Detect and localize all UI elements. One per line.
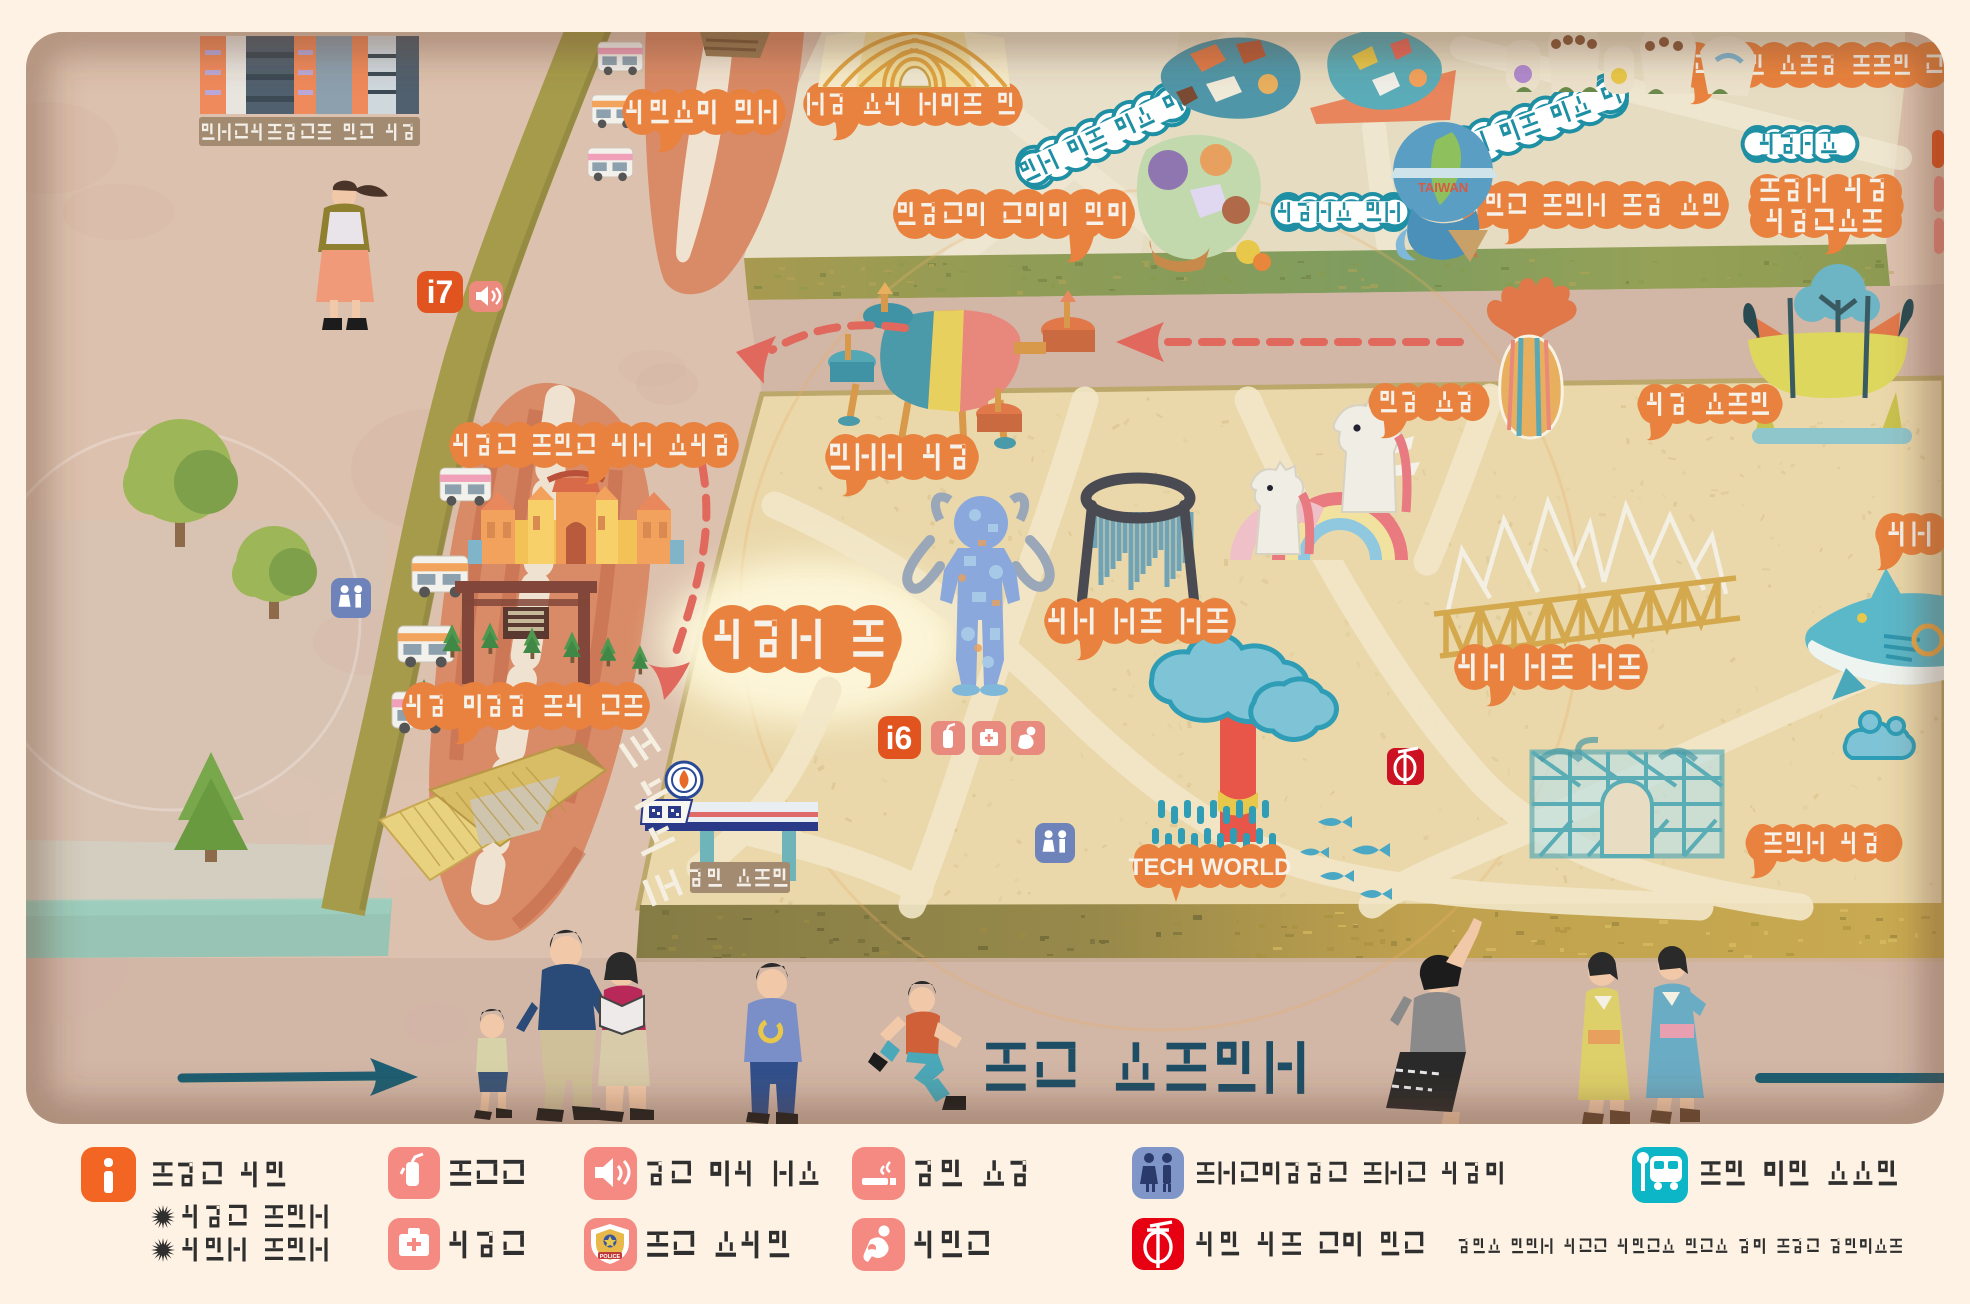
svg-text:i7: i7 [427, 274, 454, 310]
svg-text:TAIWAN: TAIWAN [1418, 180, 1468, 195]
svg-text:i6: i6 [886, 720, 913, 756]
svg-text:POLICE: POLICE [600, 1254, 621, 1260]
svg-text:TECH WORLD: TECH WORLD [1129, 854, 1292, 881]
